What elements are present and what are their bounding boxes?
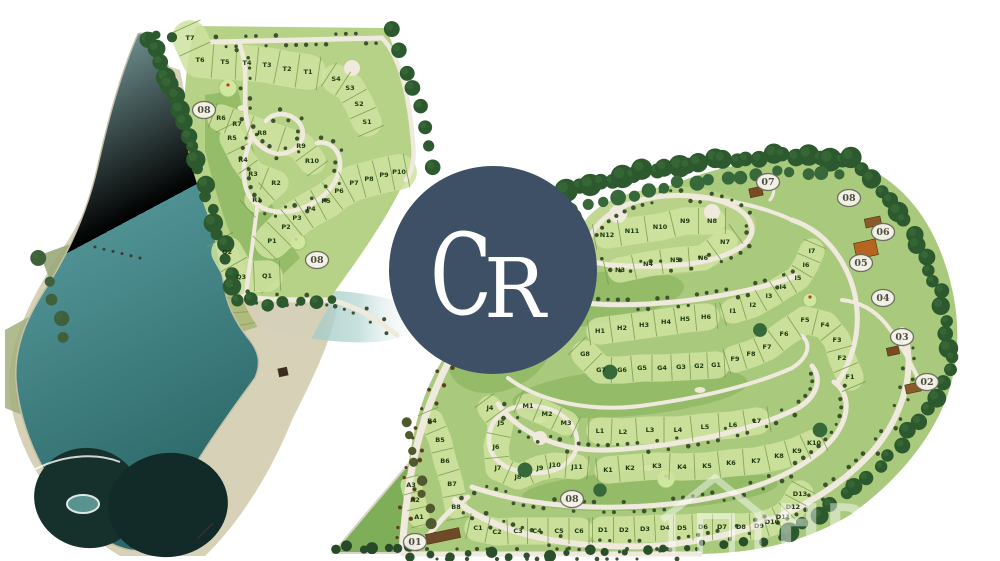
- putting-green: [803, 293, 817, 307]
- lot-label: F8: [747, 350, 756, 358]
- lot-label: I3: [766, 292, 773, 300]
- lot-label: I1: [730, 307, 737, 315]
- jetty: [278, 367, 288, 377]
- tree: [385, 544, 393, 552]
- lot-label: N4: [643, 260, 653, 268]
- tree: [486, 547, 497, 558]
- lot-label: P5: [321, 197, 331, 205]
- lot-label: I5: [795, 274, 802, 282]
- tree: [409, 458, 418, 467]
- tree: [702, 174, 713, 185]
- tree: [152, 31, 161, 40]
- lot-label: N10: [653, 223, 668, 231]
- tree: [405, 431, 413, 439]
- marker-number: 08: [197, 105, 211, 116]
- lot-label: B6: [440, 457, 450, 465]
- lot-label: S2: [354, 100, 363, 108]
- location-marker-04: 04: [872, 290, 895, 307]
- sand-bunker: [695, 387, 706, 393]
- lot-label: C1: [473, 524, 483, 532]
- lot-label: T1: [304, 68, 313, 76]
- lot-label: D3: [640, 525, 650, 533]
- lot-label: C4: [532, 527, 542, 535]
- tree: [208, 204, 219, 215]
- logo-letter-c: C: [430, 211, 492, 341]
- tree: [719, 540, 728, 549]
- lot-label: L7: [753, 417, 762, 425]
- lot-label: F2: [838, 354, 847, 362]
- lot-label: B7: [447, 480, 456, 488]
- lot-label: C2: [492, 528, 501, 536]
- lot-label: J7: [494, 464, 502, 472]
- marker-number: 08: [310, 255, 324, 266]
- lot-label: R7: [232, 120, 242, 128]
- lot-label: G7: [596, 366, 606, 374]
- lot-label: D8: [736, 523, 746, 531]
- pool-island: [67, 495, 99, 513]
- lot-label: S4: [331, 75, 341, 83]
- lot-label: J4: [486, 404, 494, 412]
- lot-label: J11: [570, 463, 583, 471]
- lot-label: G4: [657, 364, 667, 372]
- lot-label: T6: [196, 56, 205, 64]
- lot-label: A1: [414, 513, 424, 521]
- lot-label: I6: [803, 261, 810, 269]
- location-marker-06: 06: [872, 224, 895, 241]
- tree: [408, 447, 416, 455]
- marker-number: 02: [920, 377, 933, 388]
- lot-label: G1: [711, 361, 721, 369]
- golf-flag: [808, 295, 811, 298]
- lot-label: K8: [774, 452, 784, 460]
- lot-label: B8: [451, 503, 461, 511]
- tree: [426, 518, 437, 529]
- tree: [417, 475, 428, 486]
- tree: [341, 540, 352, 551]
- lot-label: L5: [701, 423, 710, 431]
- marker-number: 07: [761, 177, 774, 188]
- tree: [465, 550, 472, 557]
- tree: [296, 297, 305, 306]
- tree: [684, 545, 690, 551]
- lot-label: R1: [252, 196, 262, 204]
- lot-label: L1: [596, 427, 605, 435]
- tree: [167, 32, 177, 42]
- golf-flag: [226, 83, 229, 86]
- location-marker-05: 05: [850, 255, 873, 272]
- lot-label: G5: [637, 364, 647, 372]
- location-marker-01: 01: [404, 534, 427, 551]
- lot-label: D1: [598, 526, 608, 534]
- lot-label: S3: [345, 84, 354, 92]
- lot-label: L4: [674, 426, 683, 434]
- cul-de-sac: [533, 431, 547, 445]
- tree: [784, 167, 794, 177]
- lot-label: K4: [677, 463, 687, 471]
- lot-label: L3: [646, 426, 655, 434]
- lot-label: B4: [427, 417, 437, 425]
- lot-label: F1: [846, 373, 855, 381]
- lot-label: G8: [580, 350, 590, 358]
- tree: [45, 276, 55, 286]
- lot-label: D5: [677, 524, 687, 532]
- lot-label: K9: [792, 447, 802, 455]
- lot-label: F4: [821, 321, 830, 329]
- lot-label: P1: [267, 237, 277, 245]
- tree: [328, 295, 337, 304]
- lot-label: R5: [227, 134, 237, 142]
- tree: [331, 545, 340, 554]
- tree: [276, 296, 288, 308]
- lot-label: B5: [435, 436, 445, 444]
- tree: [563, 550, 569, 556]
- lot-label: C6: [574, 527, 584, 535]
- lot-label: K10: [807, 439, 822, 447]
- lot-label: T5: [221, 58, 230, 66]
- lot-label: F5: [801, 316, 810, 324]
- lot-label: D7: [717, 523, 727, 531]
- lot-label: K1: [603, 466, 613, 474]
- tree: [643, 545, 653, 555]
- lot-label: J9: [536, 464, 544, 472]
- lot-label: N3: [615, 266, 625, 274]
- site-plan-image: T7T6T5T4T3T2T1S4S3S2S1R6R7R8R9R10R5R4R3R…: [0, 0, 1000, 561]
- lot-label: M1: [523, 402, 534, 410]
- watermark-text: HD: [776, 493, 874, 556]
- tree: [659, 545, 667, 553]
- lot-label: K5: [702, 462, 712, 470]
- cul-de-sac: [344, 60, 360, 76]
- lot-label: P6: [334, 187, 344, 195]
- tree: [601, 548, 609, 556]
- lot-label: R10: [305, 157, 320, 165]
- lot-label: F7: [763, 343, 772, 351]
- lot-label: P9: [379, 171, 389, 179]
- lot-label: Q2: [222, 248, 232, 256]
- tree: [423, 140, 434, 151]
- marker-number: 08: [842, 193, 856, 204]
- lot-label: S1: [362, 118, 372, 126]
- lot-label: M2: [542, 410, 553, 418]
- lot-label: Q3: [236, 273, 246, 281]
- lot-label: J5: [497, 419, 505, 427]
- lot-label: R8: [257, 129, 267, 137]
- cul-de-sac: [609, 205, 627, 223]
- master-plan-map: T7T6T5T4T3T2T1S4S3S2S1R6R7R8R9R10R5R4R3R…: [0, 0, 1000, 561]
- lot-label: T2: [283, 65, 292, 73]
- lot-label: P2: [281, 223, 290, 231]
- tree: [593, 483, 606, 496]
- lot-label: G3: [676, 363, 686, 371]
- lot-label: P3: [292, 214, 301, 222]
- lot-label: N6: [698, 254, 708, 262]
- lot-label: F3: [833, 336, 842, 344]
- tree: [659, 183, 670, 194]
- location-marker-02: 02: [916, 374, 939, 391]
- lot-label: A3: [406, 481, 416, 489]
- location-marker-08: 08: [561, 491, 584, 508]
- tree: [393, 544, 402, 553]
- tree: [739, 537, 749, 547]
- lot-label: J6: [492, 443, 500, 451]
- marker-number: 03: [895, 332, 908, 343]
- marker-number: 06: [876, 227, 890, 238]
- lot-label: L6: [729, 421, 738, 429]
- lot-label: N7: [720, 238, 730, 246]
- tree: [505, 553, 513, 561]
- tree: [583, 199, 594, 210]
- tree: [427, 551, 435, 559]
- location-marker-08: 08: [838, 190, 861, 207]
- lot-label: N12: [600, 231, 615, 239]
- tree: [402, 417, 412, 427]
- lot-label: P7: [349, 179, 358, 187]
- marker-number: 04: [876, 293, 890, 304]
- lot-label: G2: [694, 362, 704, 370]
- lot-label: K7: [751, 457, 761, 465]
- watermark-text: hv: [872, 494, 937, 550]
- tree: [834, 169, 844, 179]
- lot-label: R4: [238, 156, 248, 164]
- marker-number: 08: [565, 494, 579, 505]
- lot-label: T4: [243, 59, 252, 67]
- lot-label: H2: [617, 324, 627, 332]
- tree: [629, 191, 640, 202]
- lot-label: D2: [619, 526, 629, 534]
- tree: [585, 545, 595, 555]
- location-marker-03: 03: [891, 329, 914, 346]
- lot-label: T3: [263, 61, 272, 69]
- tree: [366, 542, 378, 554]
- lot-label: H4: [661, 318, 671, 326]
- lot-label: R9: [296, 142, 306, 150]
- lot-label: J8: [514, 473, 522, 481]
- lot-label: K6: [726, 459, 736, 467]
- tree: [622, 549, 628, 555]
- lot-label: J10: [548, 461, 561, 469]
- marker-number: 05: [854, 258, 867, 269]
- tree: [803, 168, 815, 180]
- lot-label: H6: [701, 313, 711, 321]
- lot-label: F9: [731, 355, 740, 363]
- lot-label: C3: [513, 527, 522, 535]
- cr-logo: CR: [389, 166, 597, 374]
- tree: [192, 163, 203, 174]
- lot-label: P4: [306, 205, 316, 213]
- lot-label: I2: [750, 301, 757, 309]
- lot-label: N11: [625, 227, 640, 235]
- tree: [426, 504, 435, 513]
- lot-label: K2: [625, 464, 635, 472]
- putting-green: [219, 79, 237, 97]
- tree: [523, 552, 529, 558]
- lot-label: N5: [670, 256, 680, 264]
- lot-label: H1: [595, 327, 605, 335]
- lot-label: N9: [680, 217, 690, 225]
- tree: [58, 332, 69, 343]
- lot-label: H3: [639, 321, 649, 329]
- lot-label: H5: [680, 315, 690, 323]
- lot-label: C5: [554, 527, 564, 535]
- tree: [598, 197, 608, 207]
- lot-label: N8: [707, 217, 717, 225]
- location-marker-08: 08: [193, 102, 216, 119]
- lot-label: T7: [186, 34, 195, 42]
- lot-label: K3: [652, 462, 662, 470]
- tree: [46, 294, 58, 306]
- lot-label: R2: [271, 179, 281, 187]
- lot-label: F6: [780, 330, 789, 338]
- lot-label: Q1: [262, 272, 273, 280]
- lot-label: M3: [561, 419, 572, 427]
- lot-label: G6: [617, 366, 627, 374]
- tree: [753, 323, 767, 337]
- lot-label: P10: [392, 168, 406, 176]
- tree: [813, 423, 828, 438]
- lot-label: A2: [410, 496, 420, 504]
- lot-label: P8: [364, 175, 374, 183]
- lot-label: I4: [780, 283, 787, 291]
- logo-letter-r: R: [484, 242, 548, 337]
- lot-label: I7: [809, 247, 816, 255]
- lot-label: R6: [216, 114, 226, 122]
- lot-label: R3: [248, 170, 258, 178]
- lot-label: L2: [619, 428, 628, 436]
- location-marker-08: 08: [306, 252, 329, 269]
- location-marker-07: 07: [757, 174, 780, 191]
- tree: [199, 190, 211, 202]
- marker-number: 01: [408, 537, 421, 548]
